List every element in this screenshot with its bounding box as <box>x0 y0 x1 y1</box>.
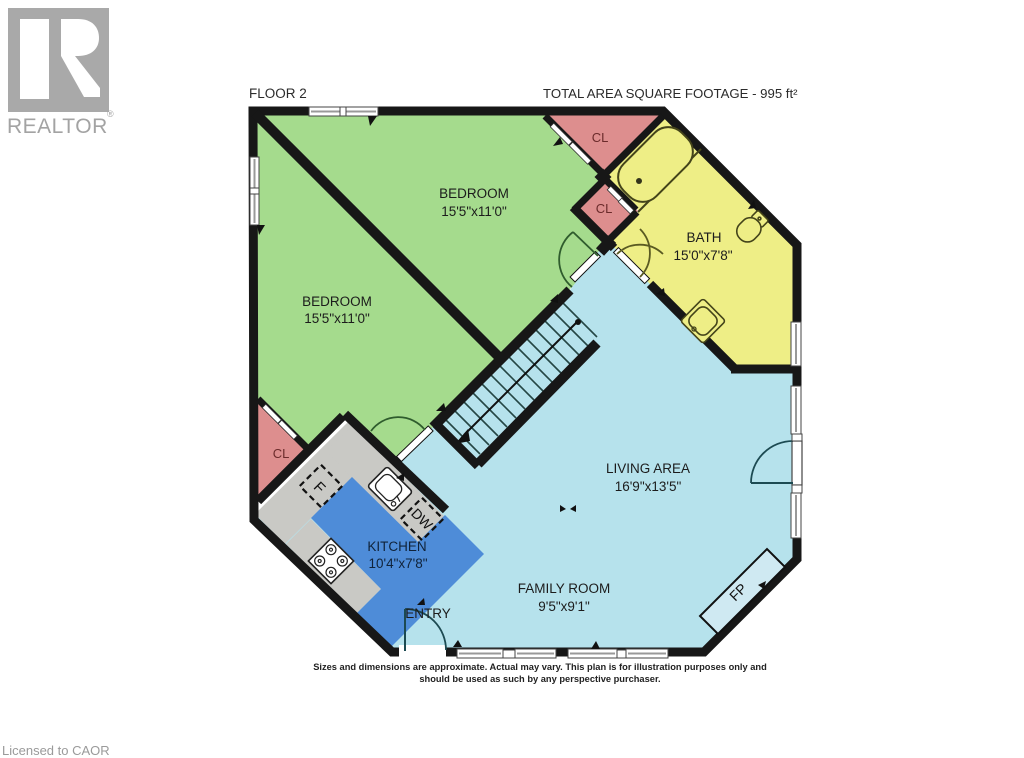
svg-text:15'0"x7'8": 15'0"x7'8" <box>673 248 732 263</box>
svg-text:BATH: BATH <box>686 230 721 245</box>
svg-text:ENTRY: ENTRY <box>405 606 451 621</box>
svg-text:KITCHEN: KITCHEN <box>367 539 426 554</box>
svg-text:10'4"x7'8": 10'4"x7'8" <box>368 556 427 571</box>
svg-text:LIVING AREA: LIVING AREA <box>606 461 690 476</box>
svg-text:CL: CL <box>596 201 613 216</box>
svg-text:®: ® <box>107 109 114 119</box>
svg-text:CL: CL <box>273 446 290 461</box>
svg-text:FAMILY ROOM: FAMILY ROOM <box>518 581 611 596</box>
svg-text:16'9"x13'5": 16'9"x13'5" <box>615 479 682 494</box>
svg-text:Licensed to CAOR: Licensed to CAOR <box>2 743 110 758</box>
svg-text:should be used as such by any: should be used as such by any perspectiv… <box>419 674 660 684</box>
svg-text:15'5"x11'0": 15'5"x11'0" <box>441 204 507 219</box>
svg-text:Sizes and dimensions are appro: Sizes and dimensions are approximate. Ac… <box>313 662 767 672</box>
svg-text:15'5"x11'0": 15'5"x11'0" <box>304 311 370 326</box>
svg-text:BEDROOM: BEDROOM <box>302 294 372 309</box>
svg-text:REALTOR: REALTOR <box>7 115 108 138</box>
svg-text:CL: CL <box>592 130 609 145</box>
svg-text:TOTAL AREA SQUARE FOOTAGE - 99: TOTAL AREA SQUARE FOOTAGE - 995 ft² <box>543 86 798 101</box>
svg-text:FLOOR 2: FLOOR 2 <box>249 86 307 101</box>
svg-text:BEDROOM: BEDROOM <box>439 186 509 201</box>
svg-text:9'5"x9'1": 9'5"x9'1" <box>538 599 590 614</box>
